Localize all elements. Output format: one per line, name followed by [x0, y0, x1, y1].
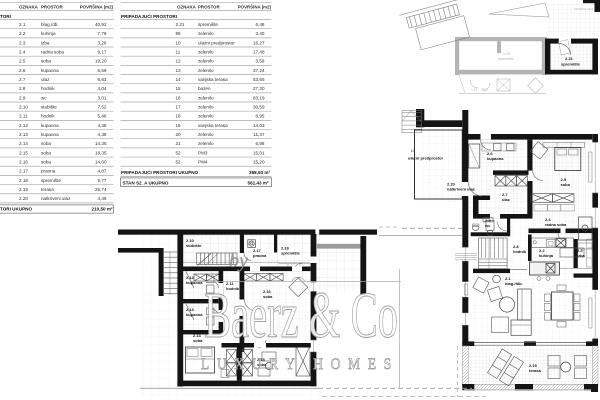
svg-text:7,52: 7,52: [98, 105, 107, 110]
svg-text:19,20: 19,20: [95, 59, 107, 64]
svg-text:9,17: 9,17: [98, 49, 107, 54]
svg-text:PM4: PM4: [198, 160, 208, 165]
svg-text:210,50 m²: 210,50 m²: [92, 207, 113, 212]
svg-text:+0,2: +0,2: [481, 88, 488, 92]
svg-text:terasa: terasa: [41, 187, 54, 192]
svg-text:soba: soba: [41, 150, 51, 155]
svg-text:561,43 m²: 561,43 m²: [248, 180, 269, 185]
svg-text:by: by: [229, 250, 248, 272]
svg-text:4,04: 4,04: [98, 86, 107, 91]
svg-text:spremište: spremište: [498, 57, 514, 61]
svg-text:hodnik: hodnik: [513, 249, 527, 254]
svg-text:spremište: spremište: [41, 178, 61, 183]
svg-text:ulazni predprostor: ulazni predprostor: [408, 156, 444, 161]
svg-text:2.1: 2.1: [19, 22, 26, 27]
svg-text:2.3: 2.3: [19, 40, 26, 45]
svg-text:zelenilo: zelenilo: [198, 49, 214, 54]
svg-text:15,01: 15,01: [253, 150, 265, 155]
svg-text:7,79: 7,79: [98, 31, 107, 36]
svg-text:soba: soba: [41, 160, 51, 165]
svg-text:52: 52: [176, 160, 182, 165]
svg-text:zelenilo: zelenilo: [198, 68, 214, 73]
svg-text:zelenilo: zelenilo: [198, 95, 214, 100]
svg-text:2.14: 2.14: [19, 141, 28, 146]
svg-text:2.21: 2.21: [176, 22, 185, 27]
svg-text:stubište: stubište: [41, 105, 57, 110]
svg-text:6,48: 6,48: [256, 22, 265, 27]
svg-text:soba: soba: [41, 141, 51, 146]
svg-text:4,38: 4,38: [98, 123, 107, 128]
svg-text:praona: praona: [253, 253, 267, 258]
svg-text:17: 17: [176, 105, 182, 110]
svg-text:52: 52: [176, 150, 182, 155]
svg-text:wc: wc: [484, 223, 491, 228]
svg-text:11: 11: [176, 49, 181, 54]
svg-text:PROSTOR: PROSTOR: [41, 4, 63, 9]
svg-text:2.20: 2.20: [19, 196, 28, 201]
svg-text:6,98: 6,98: [256, 141, 265, 146]
svg-text:soba: soba: [193, 338, 203, 343]
svg-text:kuhinja: kuhinja: [539, 253, 554, 258]
svg-text:16: 16: [176, 95, 182, 100]
svg-text:STAN S2_A UKUPNO: STAN S2_A UKUPNO: [123, 180, 169, 185]
svg-text:kupaona: kupaona: [41, 132, 59, 137]
svg-text:zelenilo: zelenilo: [198, 114, 214, 119]
svg-text:spremište: spremište: [561, 62, 581, 67]
svg-text:2.16: 2.16: [19, 160, 28, 165]
svg-text:3,01: 3,01: [98, 95, 107, 100]
svg-text:kupaona: kupaona: [487, 156, 504, 161]
svg-text:2.19: 2.19: [19, 187, 28, 192]
svg-text:natkriveni ulaz: natkriveni ulaz: [447, 187, 475, 192]
svg-text:praona: praona: [41, 169, 56, 174]
svg-text:TORI: TORI: [0, 14, 11, 19]
svg-text:izba: izba: [577, 253, 586, 258]
svg-text:5,46: 5,46: [98, 114, 107, 119]
svg-text:wc: wc: [41, 95, 47, 100]
svg-text:kupaona: kupaona: [186, 312, 203, 317]
svg-text:soba: soba: [561, 182, 571, 187]
svg-text:spremište: spremište: [198, 22, 218, 27]
svg-text:13: 13: [176, 68, 182, 73]
svg-text:TORI UKUPNO: TORI UKUPNO: [0, 207, 32, 212]
svg-text:1.19: 1.19: [503, 52, 510, 56]
svg-text:ulazni predprostor: ulazni predprostor: [198, 40, 235, 45]
svg-text:83,19: 83,19: [253, 95, 265, 100]
svg-text:zelenilo: zelenilo: [198, 132, 214, 137]
svg-text:25,74: 25,74: [95, 187, 107, 192]
svg-text:2.7: 2.7: [19, 77, 26, 82]
svg-text:17,48: 17,48: [253, 49, 265, 54]
svg-text:86: 86: [176, 31, 182, 36]
svg-text:21: 21: [176, 141, 182, 146]
svg-text:14,36: 14,36: [95, 141, 107, 146]
svg-text:2.15: 2.15: [19, 150, 28, 155]
svg-text:30,59: 30,59: [253, 105, 265, 110]
svg-text:zelenilo: zelenilo: [198, 31, 214, 36]
svg-text:40,92: 40,92: [95, 22, 107, 27]
svg-text:14,60: 14,60: [95, 160, 107, 165]
svg-text:vanjska terasa: vanjska terasa: [198, 123, 228, 128]
svg-text:OZNAKA: OZNAKA: [19, 4, 39, 9]
svg-text:19: 19: [176, 123, 182, 128]
svg-text:kupaona: kupaona: [41, 68, 59, 73]
svg-text:2.11: 2.11: [19, 114, 28, 119]
svg-text:zelenilo: zelenilo: [198, 59, 214, 64]
svg-text:2.5: 2.5: [19, 59, 26, 64]
svg-text:radna soba: radna soba: [545, 222, 567, 227]
svg-text:kupaona: kupaona: [41, 123, 59, 128]
svg-text:358,93 m²: 358,93 m²: [249, 170, 270, 175]
svg-text:hodnik: hodnik: [41, 114, 55, 119]
svg-text:ulaz: ulaz: [41, 77, 50, 82]
svg-text:POVRŠINA (m2): POVRŠINA (m2): [238, 4, 272, 9]
svg-text:PRIPADAJUĆI PROSTORI: PRIPADAJUĆI PROSTORI: [121, 12, 177, 19]
svg-text:5,77: 5,77: [98, 178, 107, 183]
svg-text:2.12: 2.12: [19, 123, 28, 128]
svg-text:Baerz & Co: Baerz & Co: [204, 279, 398, 352]
svg-text:POVRŠINA (m2): POVRŠINA (m2): [80, 4, 114, 9]
svg-text:kupaona: kupaona: [186, 280, 203, 285]
svg-text:14: 14: [176, 77, 182, 82]
svg-text:6,63: 6,63: [98, 77, 107, 82]
svg-text:vanjska tera: vanjska tera: [574, 7, 593, 11]
svg-text:ulaz: ulaz: [502, 197, 510, 202]
svg-text:spremište: spremište: [281, 251, 301, 256]
svg-text:2.13: 2.13: [19, 132, 28, 137]
svg-text:4,87: 4,87: [98, 169, 107, 174]
svg-text:4,46: 4,46: [98, 196, 107, 201]
svg-text:15,20: 15,20: [253, 160, 265, 165]
svg-text:3,59: 3,59: [256, 59, 265, 64]
svg-text:natkriveni ulaz: natkriveni ulaz: [41, 196, 71, 201]
svg-text:blag./db.: blag./db.: [41, 22, 59, 27]
svg-text:radna soba: radna soba: [41, 49, 64, 54]
svg-text:1.11: 1.11: [471, 88, 477, 92]
svg-text:10: 10: [411, 149, 415, 153]
svg-text:6,59: 6,59: [98, 68, 107, 73]
svg-text:bazen: bazen: [198, 86, 211, 91]
svg-text:20: 20: [176, 132, 182, 137]
svg-text:53,65: 53,65: [253, 77, 265, 82]
svg-text:2.18: 2.18: [19, 178, 28, 183]
svg-text:LUXURY HOMES: LUXURY HOMES: [201, 356, 399, 373]
svg-text:2.17: 2.17: [19, 169, 28, 174]
svg-text:18,35: 18,35: [95, 150, 107, 155]
svg-text:18: 18: [176, 114, 182, 119]
svg-text:vanjska terasa: vanjska terasa: [198, 77, 228, 82]
svg-text:zelenilo: zelenilo: [198, 141, 214, 146]
svg-text:10: 10: [176, 40, 182, 45]
svg-text:2.6: 2.6: [19, 68, 26, 73]
svg-text:zelenilo: zelenilo: [198, 105, 214, 110]
svg-text:27,30: 27,30: [253, 86, 265, 91]
svg-text:11,37: 11,37: [253, 132, 265, 137]
svg-text:2.2: 2.2: [19, 31, 26, 36]
svg-text:15: 15: [176, 86, 182, 91]
svg-text:14,03: 14,03: [253, 123, 265, 128]
svg-text:OZNAKA: OZNAKA: [177, 4, 197, 9]
svg-text:4,38: 4,38: [98, 132, 107, 137]
svg-text:3,40: 3,40: [256, 31, 265, 36]
svg-text:stubište: stubište: [186, 243, 202, 248]
svg-text:izba: izba: [41, 40, 50, 45]
svg-text:PROSTOR: PROSTOR: [198, 4, 220, 9]
svg-text:blag./tdb.: blag./tdb.: [505, 281, 523, 286]
svg-text:PM3: PM3: [198, 150, 208, 155]
svg-text:PRIPADAJUĆI PROSTORI UKUPNO: PRIPADAJUĆI PROSTORI UKUPNO: [121, 168, 199, 175]
svg-text:2.8: 2.8: [19, 86, 26, 91]
svg-text:16,27: 16,27: [253, 40, 265, 45]
svg-text:2.10: 2.10: [19, 105, 28, 110]
svg-text:hodnik: hodnik: [41, 86, 55, 91]
svg-text:8,95: 8,95: [256, 114, 265, 119]
svg-text:37,24: 37,24: [253, 68, 265, 73]
svg-text:terasa: terasa: [529, 368, 542, 373]
svg-text:3,26: 3,26: [98, 40, 107, 45]
svg-text:2.4: 2.4: [19, 49, 26, 54]
svg-text:12: 12: [176, 59, 182, 64]
svg-text:2.9: 2.9: [19, 95, 26, 100]
svg-text:kuhinja: kuhinja: [41, 31, 56, 36]
svg-text:2.21: 2.21: [565, 56, 574, 61]
svg-text:soba: soba: [41, 59, 51, 64]
